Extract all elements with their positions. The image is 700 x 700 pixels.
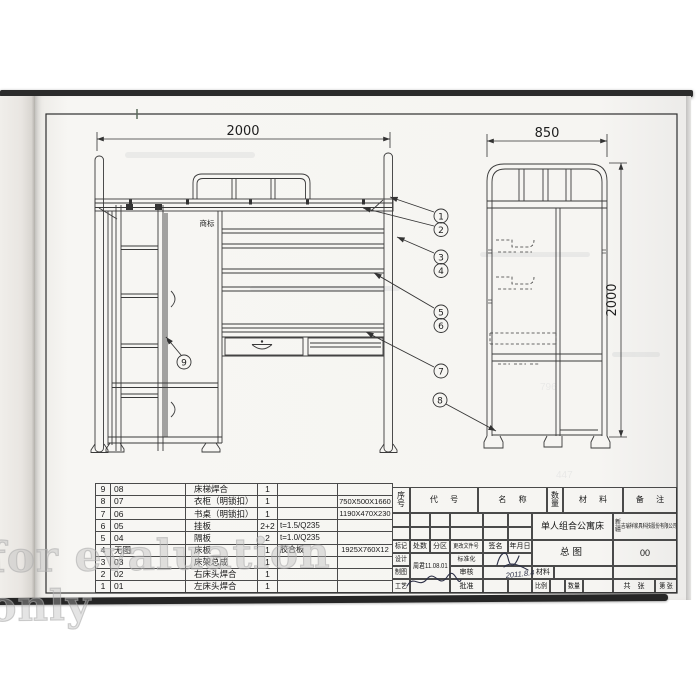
part-qty: 1 <box>258 568 278 580</box>
standardize-sign-cell <box>483 553 532 566</box>
part-qty: 1 <box>258 556 278 568</box>
company-cell: 新疆 吉瑞祥家具科技股份有限公司 <box>613 513 677 540</box>
product-name: 单人组合公寓床 <box>532 513 613 540</box>
revision-cell <box>430 527 450 540</box>
table-row: 4无图床板1胶合板1925X760X12 <box>96 544 393 556</box>
drawing-title: 总图 <box>532 540 613 566</box>
adjacent-page-edge <box>0 96 35 600</box>
table-row: 807衣柜（明锁扣）1750X500X1660 <box>96 496 393 508</box>
table-row: 303床架总成1 <box>96 556 393 568</box>
table-row: 706书桌（明锁扣）11190X470X230 <box>96 508 393 520</box>
scale-value-cell <box>550 579 565 593</box>
part-seq: 8 <box>96 496 111 508</box>
part-material <box>278 508 338 520</box>
label-quantity: 数量 <box>565 579 583 593</box>
part-material <box>278 556 338 568</box>
revision-cell <box>508 527 532 540</box>
part-spec <box>338 580 393 592</box>
part-qty: 1 <box>258 544 278 556</box>
revision-cell <box>483 527 508 540</box>
label-approve: 批准 <box>450 579 483 593</box>
revision-cell <box>450 527 483 540</box>
parts-list-table: 908床梯焊合1 807衣柜（明锁扣）1750X500X1660 706书桌（明… <box>95 483 393 593</box>
part-spec <box>338 568 393 580</box>
part-name: 隔板 <box>186 532 258 544</box>
part-qty: 1 <box>258 496 278 508</box>
empty-cell <box>508 579 532 593</box>
header-name: 名 称 <box>478 487 547 513</box>
label-sign: 签名 <box>483 540 508 553</box>
revision-cell <box>430 513 450 527</box>
part-qty: 1 <box>258 484 278 496</box>
label-audit: 审核 <box>450 566 483 579</box>
part-code: 无图 <box>111 544 186 556</box>
label-sheets-total: 共 张 <box>613 579 655 593</box>
part-qty: 1 <box>258 508 278 520</box>
label-design: 设计 <box>392 553 410 566</box>
table-row: 908床梯焊合1 <box>96 484 393 496</box>
audit-sign-cell <box>483 566 532 579</box>
part-code: 01 <box>111 580 186 592</box>
part-name: 书桌（明锁扣） <box>186 508 258 520</box>
table-row: 202右床头焊合1 <box>96 568 393 580</box>
part-material <box>278 580 338 592</box>
part-spec <box>338 484 393 496</box>
label-count: 处数 <box>410 540 430 553</box>
title-block: 序号 代 号 名 称 数量 材 料 备 注 单人组合公寓床 新疆 吉瑞祥家具科技… <box>392 487 677 593</box>
part-name: 床架总成 <box>186 556 258 568</box>
label-scale: 比例 <box>532 579 550 593</box>
table-row: 605挂板2+2t=1.5/Q235 <box>96 520 393 532</box>
designer-date: 周君11.08.01 <box>410 553 450 579</box>
header-seq: 序号 <box>392 487 410 513</box>
revision-cell <box>392 527 410 540</box>
material-value-cell <box>554 566 613 579</box>
part-seq: 9 <box>96 484 111 496</box>
quantity-value-cell <box>583 579 613 593</box>
part-material <box>278 496 338 508</box>
part-name: 衣柜（明锁扣） <box>186 496 258 508</box>
revision-cell <box>410 513 430 527</box>
table-row: 101左床头焊合1 <box>96 580 393 592</box>
part-qty: 2+2 <box>258 520 278 532</box>
empty-cell <box>483 579 508 593</box>
drawing-number: 00 <box>613 540 677 566</box>
label-sheet-no: 第 张 <box>655 579 677 593</box>
part-code: 06 <box>111 508 186 520</box>
page-right-shadow <box>686 96 692 600</box>
part-spec: 750X500X1660 <box>338 496 393 508</box>
part-spec <box>338 520 393 532</box>
part-seq: 2 <box>96 568 111 580</box>
revision-cell <box>508 513 532 527</box>
part-seq: 1 <box>96 580 111 592</box>
label-material: 材料 <box>532 566 554 579</box>
label-standardize: 标准化 <box>450 553 483 566</box>
part-material: t=1.0/Q235 <box>278 532 338 544</box>
part-seq: 5 <box>96 532 111 544</box>
part-code: 07 <box>111 496 186 508</box>
part-spec <box>338 532 393 544</box>
revision-cell <box>410 527 430 540</box>
header-qty: 数量 <box>547 487 563 513</box>
part-name: 床梯焊合 <box>186 484 258 496</box>
part-material: t=1.5/Q235 <box>278 520 338 532</box>
part-spec <box>338 556 393 568</box>
part-name: 左床头焊合 <box>186 580 258 592</box>
label-mark: 标记 <box>392 540 410 553</box>
empty-cell <box>613 566 677 579</box>
header-code: 代 号 <box>410 487 478 513</box>
part-seq: 3 <box>96 556 111 568</box>
revision-cell <box>392 513 410 527</box>
part-code: 04 <box>111 532 186 544</box>
header-material: 材 料 <box>563 487 623 513</box>
part-spec: 1925X760X12 <box>338 544 393 556</box>
label-draft: 制图 <box>392 566 410 579</box>
label-date: 年月日 <box>508 540 532 553</box>
part-seq: 7 <box>96 508 111 520</box>
company-name: 吉瑞祥家具科技股份有限公司 <box>621 524 677 530</box>
part-material <box>278 484 338 496</box>
label-change-doc: 更改文件号 <box>450 540 483 553</box>
table-row: 504隔板2t=1.0/Q235 <box>96 532 393 544</box>
part-name: 床板 <box>186 544 258 556</box>
part-qty: 1 <box>258 580 278 592</box>
part-material: 胶合板 <box>278 544 338 556</box>
header-notes: 备 注 <box>623 487 677 513</box>
revision-cell <box>483 513 508 527</box>
part-seq: 6 <box>96 520 111 532</box>
part-name: 右床头焊合 <box>186 568 258 580</box>
part-name: 挂板 <box>186 520 258 532</box>
label-craft: 工艺 <box>392 579 410 593</box>
part-code: 03 <box>111 556 186 568</box>
part-code: 05 <box>111 520 186 532</box>
label-zone: 分区 <box>430 540 450 553</box>
revision-cell <box>450 513 483 527</box>
part-seq: 4 <box>96 544 111 556</box>
part-qty: 2 <box>258 532 278 544</box>
part-code: 08 <box>111 484 186 496</box>
part-spec: 1190X470X230 <box>338 508 393 520</box>
part-code: 02 <box>111 568 186 580</box>
part-material <box>278 568 338 580</box>
craft-sign-cell <box>410 579 450 593</box>
